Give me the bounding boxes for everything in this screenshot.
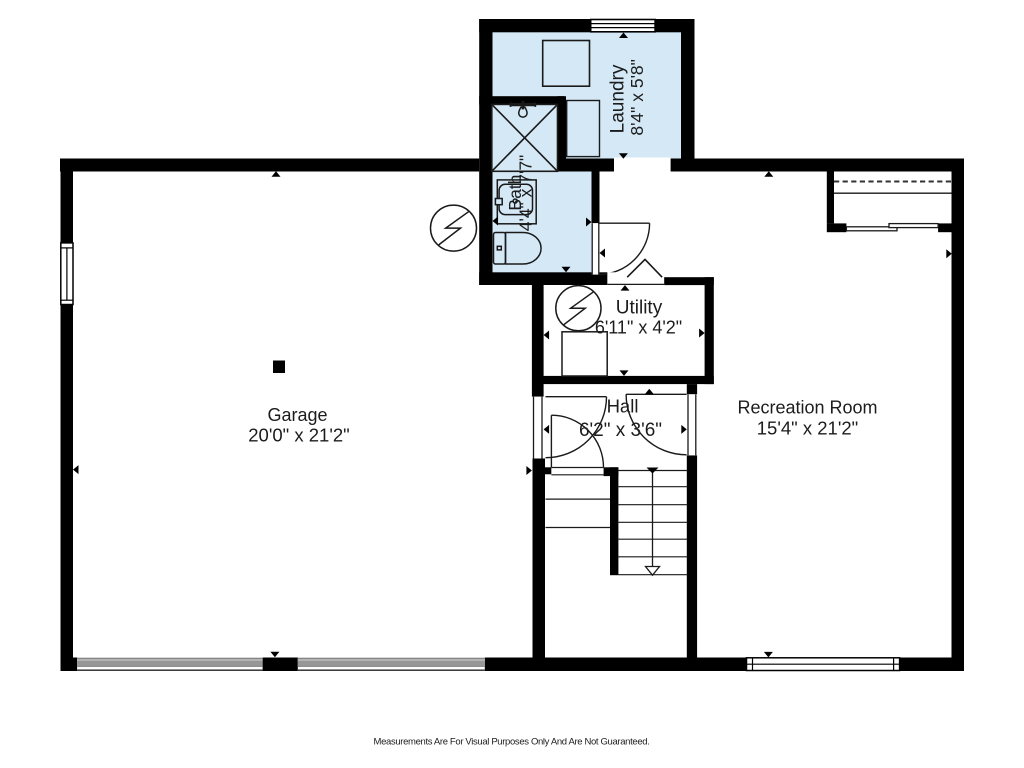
svg-text:6'11" x 4'2": 6'11" x 4'2": [595, 318, 682, 338]
svg-text:4'4" x 7'7": 4'4" x 7'7": [516, 155, 536, 232]
svg-text:Utility: Utility: [616, 298, 663, 319]
svg-text:20'0" x 21'2": 20'0" x 21'2": [248, 425, 349, 446]
svg-text:Measurements Are For Visual Pu: Measurements Are For Visual Purposes Onl…: [374, 737, 650, 748]
svg-text:8'4" x 5'8": 8'4" x 5'8": [627, 59, 647, 136]
svg-text:Hall: Hall: [607, 396, 639, 417]
svg-text:6'2" x 3'6": 6'2" x 3'6": [579, 420, 662, 441]
svg-text:15'4" x 21'2": 15'4" x 21'2": [757, 418, 858, 439]
svg-text:Garage: Garage: [267, 405, 327, 425]
svg-text:Recreation Room: Recreation Room: [737, 398, 877, 418]
svg-text:Laundry: Laundry: [607, 64, 628, 133]
